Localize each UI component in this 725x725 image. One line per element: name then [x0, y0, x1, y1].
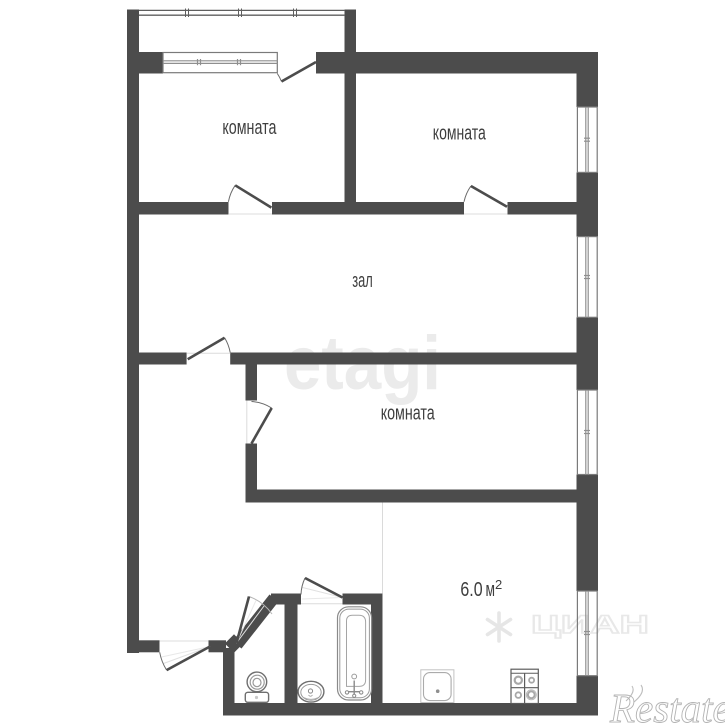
svg-text:зал: зал: [352, 270, 373, 292]
svg-text:6.0: 6.0: [460, 579, 482, 601]
svg-text:м: м: [486, 579, 496, 601]
svg-text:комната: комната: [222, 117, 277, 139]
svg-text:2: 2: [495, 577, 502, 592]
svg-text:комната: комната: [381, 403, 436, 425]
svg-text:комната: комната: [433, 123, 487, 145]
svg-text:Restate: Restate: [609, 685, 725, 725]
